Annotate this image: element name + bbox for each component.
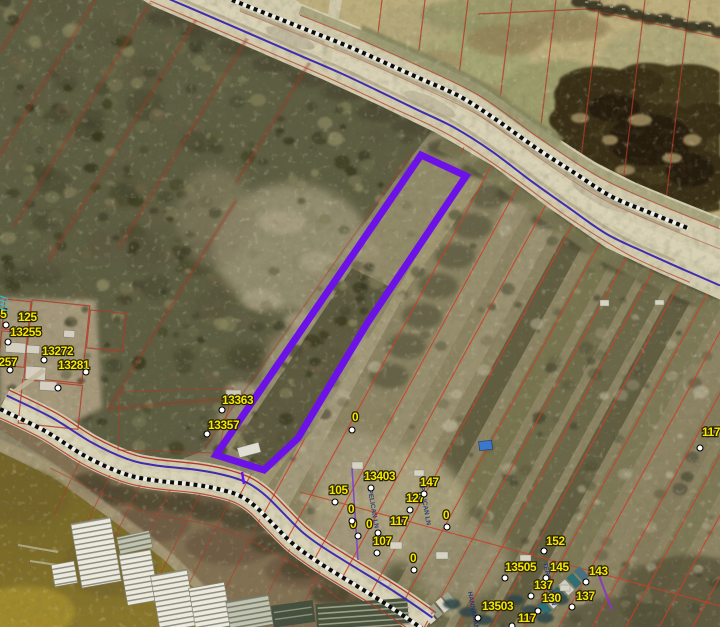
svg-text:13363: 13363 <box>222 393 254 407</box>
svg-text:13272: 13272 <box>42 344 74 358</box>
svg-text:0: 0 <box>410 551 417 565</box>
svg-text:117: 117 <box>702 425 720 439</box>
svg-text:13357: 13357 <box>208 418 240 432</box>
svg-text:105: 105 <box>329 483 349 497</box>
svg-text:107: 107 <box>373 534 393 548</box>
svg-text:145: 145 <box>550 560 570 574</box>
svg-text:152: 152 <box>546 534 566 548</box>
svg-text:13255: 13255 <box>10 325 42 339</box>
svg-text:0: 0 <box>352 410 359 424</box>
svg-text:117: 117 <box>390 514 409 528</box>
svg-text:13403: 13403 <box>364 469 396 483</box>
svg-text:125: 125 <box>18 310 38 324</box>
svg-text:0: 0 <box>366 517 373 531</box>
svg-text:13505: 13505 <box>505 560 537 574</box>
svg-text:143: 143 <box>589 564 609 578</box>
svg-text:130: 130 <box>542 591 562 605</box>
svg-text:13503: 13503 <box>482 599 514 613</box>
svg-text:137: 137 <box>576 589 596 603</box>
svg-text:0: 0 <box>348 502 355 516</box>
svg-text:147: 147 <box>420 475 440 489</box>
svg-text:117: 117 <box>518 611 537 625</box>
svg-text:0: 0 <box>443 508 450 522</box>
